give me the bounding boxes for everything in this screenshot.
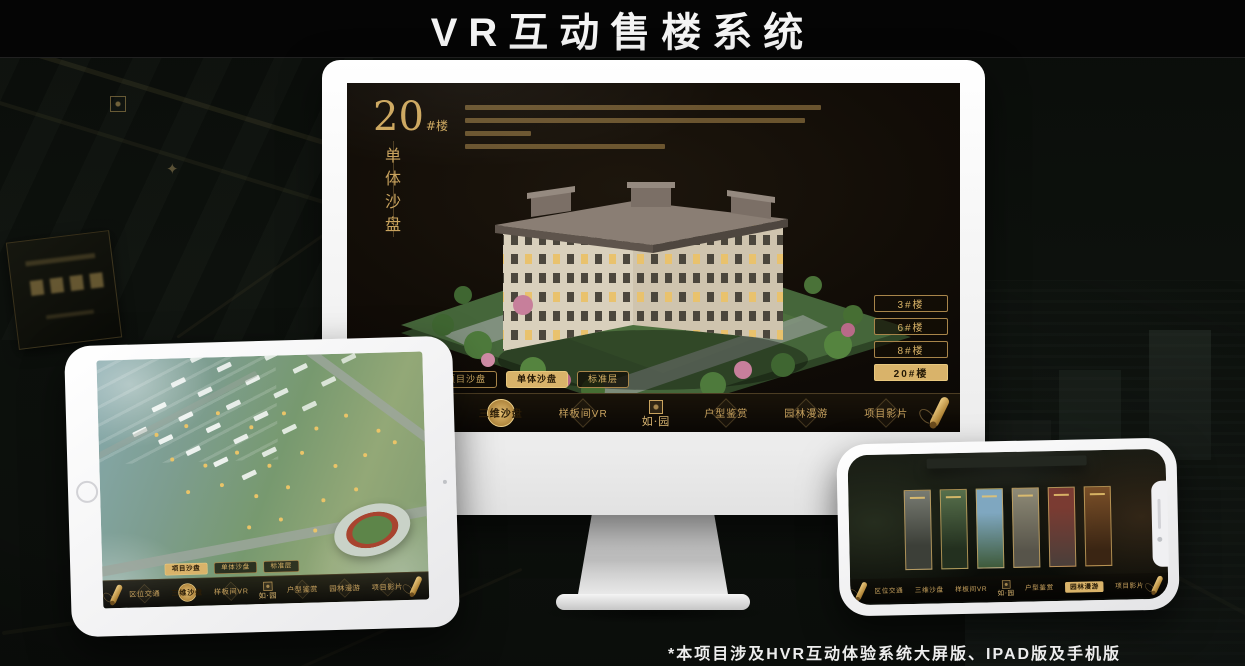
nav-item-garden-tour[interactable]: 园林漫游 — [1064, 578, 1105, 594]
phone-device: 区位交通 三维沙盘 样板间VR 如·园 户型鉴赏 园林漫游 项目影片 — [836, 437, 1180, 616]
scene-panel[interactable] — [1084, 486, 1113, 567]
tablet-bottom-nav: 区位交通 三维沙盘 样板间VR 如·园 户型鉴赏 园林漫游 项目影片 — [103, 571, 430, 608]
scene-panel[interactable] — [904, 490, 933, 571]
nav-item-model-room-vr[interactable]: 样板间VR — [212, 582, 250, 600]
floor-button-group: 3#楼 6#楼 8#楼 20#楼 — [874, 295, 952, 387]
nav-item-garden-tour[interactable]: 园林漫游 — [328, 579, 362, 597]
description-text-lines — [465, 105, 821, 157]
nav-item-model-room-vr[interactable]: 样板间VR — [954, 581, 989, 597]
sparkle-icon: ✦ — [166, 160, 179, 178]
floor-button-20[interactable]: 20#楼 — [874, 364, 948, 381]
camera-icon — [443, 479, 447, 483]
sandbox-subtabs: 项目沙盘 单体沙盘 标准层 — [435, 371, 629, 388]
tablet-screen: 项目沙盘 单体沙盘 标准层 区位交通 三维沙盘 样板间VR 如·园 户型鉴赏 园… — [96, 351, 429, 608]
nav-item-unit-gallery[interactable]: 户型鉴赏 — [285, 580, 319, 598]
nav-item-location-traffic[interactable]: 区位交通 — [128, 585, 162, 603]
background-plaque — [6, 230, 122, 350]
footnote-text: *本项目涉及HVR互动体验系统大屏版、IPAD版及手机版 — [668, 640, 1121, 664]
tablet-device: 项目沙盘 单体沙盘 标准层 区位交通 三维沙盘 样板间VR 如·园 户型鉴赏 园… — [64, 336, 460, 638]
floor-button-8[interactable]: 8#楼 — [874, 341, 948, 358]
seal-icon — [1002, 580, 1011, 589]
nav-item-project-film[interactable]: 项目影片 — [1114, 577, 1146, 593]
scroll-icon[interactable] — [409, 575, 423, 596]
map-marker-icon — [110, 96, 126, 112]
tablet-ui-overlay: 项目沙盘 单体沙盘 标准层 区位交通 三维沙盘 样板间VR 如·园 户型鉴赏 园… — [102, 556, 429, 608]
pavilion-beam — [927, 455, 1087, 468]
scene-panel[interactable] — [976, 488, 1005, 569]
home-button-icon[interactable] — [76, 480, 99, 503]
poster: ✦ VR互动售楼系统 20#楼 单体沙盘 — [0, 0, 1245, 666]
monitor-stand-neck — [577, 512, 729, 600]
phone-notch — [1151, 481, 1169, 567]
phone-bottom-nav: 区位交通 三维沙盘 样板间VR 如·园 户型鉴赏 园林漫游 项目影片 — [850, 573, 1168, 604]
scene-panel-gallery — [904, 486, 1113, 570]
seal-icon — [649, 400, 663, 414]
scroll-icon[interactable] — [928, 396, 950, 429]
brand-logo: 如·园 — [997, 580, 1014, 597]
camera-icon — [1157, 537, 1162, 542]
speaker-icon — [1157, 499, 1161, 529]
nav-item-location-traffic[interactable]: 区位交通 — [873, 582, 905, 598]
phone-screen: 区位交通 三维沙盘 样板间VR 如·园 户型鉴赏 园林漫游 项目影片 — [847, 449, 1168, 606]
scroll-icon[interactable] — [855, 581, 868, 601]
seal-icon — [263, 581, 272, 590]
scene-panel[interactable] — [1048, 487, 1077, 568]
scene-panel[interactable] — [940, 489, 969, 570]
nav-item-3d-sandbox[interactable]: 三维沙盘 — [477, 400, 525, 426]
brand-logo: 如·园 — [642, 400, 671, 427]
brand-logo: 如·园 — [258, 581, 277, 599]
scroll-icon[interactable] — [109, 584, 123, 605]
building-number: 20#楼 — [373, 97, 448, 137]
nav-item-unit-gallery[interactable]: 户型鉴赏 — [1024, 579, 1056, 595]
subtab-single-sandbox[interactable]: 单体沙盘 — [214, 561, 257, 574]
nav-item-project-film[interactable]: 项目影片 — [862, 400, 910, 426]
floor-button-3[interactable]: 3#楼 — [874, 295, 948, 312]
nav-item-project-film[interactable]: 项目影片 — [370, 578, 404, 596]
nav-item-unit-gallery[interactable]: 户型鉴赏 — [702, 400, 750, 426]
subtab-single-sandbox[interactable]: 单体沙盘 — [506, 371, 568, 388]
scene-panel[interactable] — [1012, 487, 1041, 568]
subtab-standard-floor[interactable]: 标准层 — [577, 371, 629, 388]
nav-item-3d-sandbox[interactable]: 三维沙盘 — [170, 584, 204, 602]
scroll-icon[interactable] — [1151, 575, 1164, 595]
aerial-road — [254, 351, 429, 458]
stadium — [328, 494, 417, 565]
nav-item-model-room-vr[interactable]: 样板间VR — [557, 400, 610, 426]
page-title: VR互动售楼系统 — [431, 0, 815, 58]
building-number-suffix: #楼 — [426, 119, 448, 133]
subtab-project-sandbox[interactable]: 项目沙盘 — [165, 563, 208, 576]
nav-item-garden-tour[interactable]: 园林漫游 — [782, 400, 830, 426]
monitor-stand-base — [556, 594, 750, 610]
floor-button-6[interactable]: 6#楼 — [874, 318, 948, 335]
subtab-standard-floor[interactable]: 标准层 — [263, 560, 299, 573]
title-band: VR互动售楼系统 — [0, 0, 1245, 58]
phone-ui-overlay: 区位交通 三维沙盘 样板间VR 如·园 户型鉴赏 园林漫游 项目影片 — [850, 573, 1168, 604]
nav-item-3d-sandbox[interactable]: 三维沙盘 — [913, 582, 945, 598]
